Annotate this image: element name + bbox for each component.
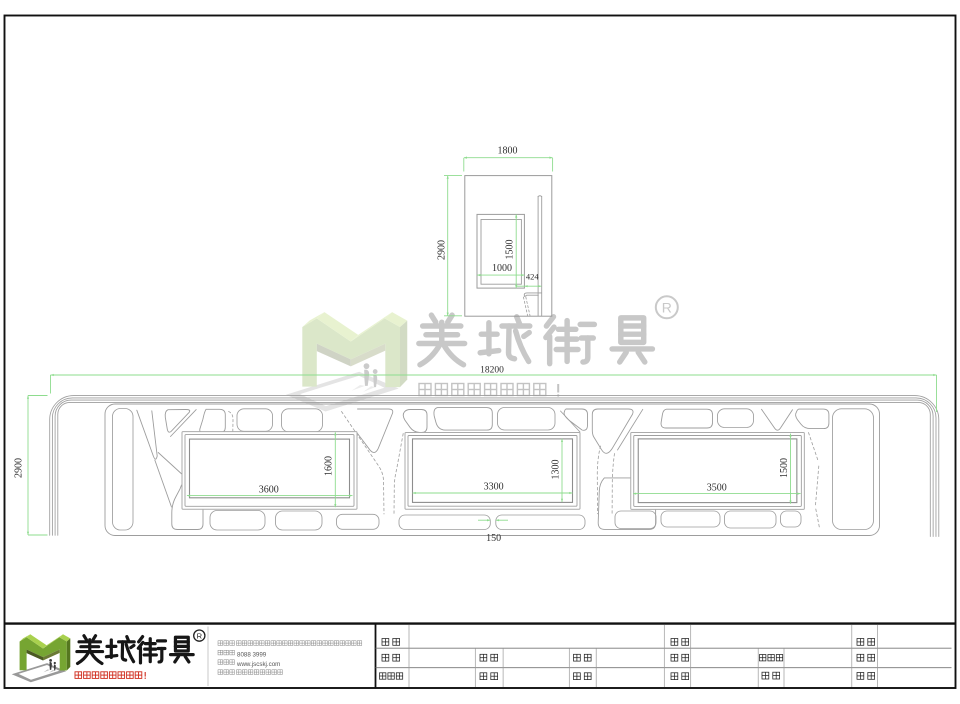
svg-text:3600: 3600 <box>259 485 279 496</box>
svg-text:1600: 1600 <box>324 456 335 476</box>
svg-text:R: R <box>662 300 672 316</box>
svg-text:3300: 3300 <box>484 481 504 492</box>
svg-text:R: R <box>197 632 203 641</box>
svg-text:2900: 2900 <box>437 240 448 260</box>
svg-text:1300: 1300 <box>550 460 561 480</box>
svg-text:8088 3999: 8088 3999 <box>237 652 267 659</box>
svg-text:1500: 1500 <box>779 458 790 478</box>
svg-text:www.jscskj.com: www.jscskj.com <box>236 661 280 668</box>
svg-text:424: 424 <box>526 272 540 282</box>
svg-text:150: 150 <box>486 533 501 544</box>
svg-text:1500: 1500 <box>505 240 516 260</box>
svg-text:1800: 1800 <box>498 146 518 157</box>
svg-text:2900: 2900 <box>14 458 25 478</box>
svg-text:18200: 18200 <box>480 366 504 376</box>
svg-text:1000: 1000 <box>492 263 512 274</box>
svg-text:3500: 3500 <box>707 482 727 493</box>
